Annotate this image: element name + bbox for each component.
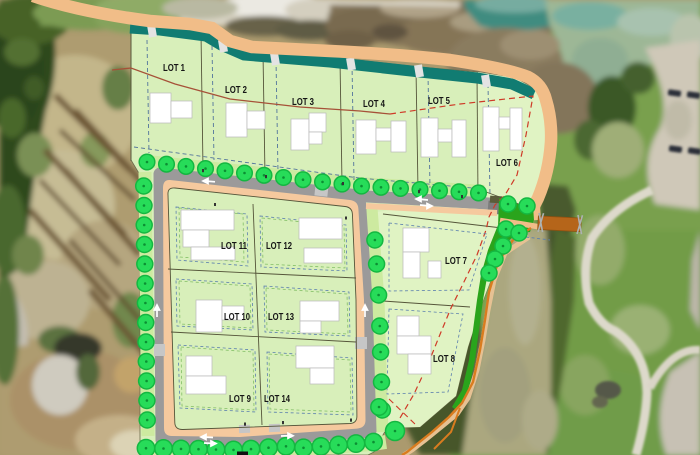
svg-text:LOT 13: LOT 13 [268,312,294,323]
svg-text:LOT 3: LOT 3 [292,97,314,108]
svg-text:LOT 1: LOT 1 [163,63,185,74]
svg-text:LOT 10: LOT 10 [224,312,250,323]
svg-text:LOT 2: LOT 2 [225,85,247,96]
svg-text:LOT 5: LOT 5 [428,96,450,107]
svg-text:LOT 8: LOT 8 [433,354,455,365]
svg-text:LOT 7: LOT 7 [445,256,467,267]
svg-text:LOT 9: LOT 9 [229,394,251,405]
svg-text:LOT 6: LOT 6 [496,158,518,169]
svg-text:LOT 4: LOT 4 [363,99,385,110]
svg-text:LOT 14: LOT 14 [264,394,290,405]
svg-text:LOT 12: LOT 12 [266,241,292,252]
svg-text:LOT 11: LOT 11 [221,241,247,252]
